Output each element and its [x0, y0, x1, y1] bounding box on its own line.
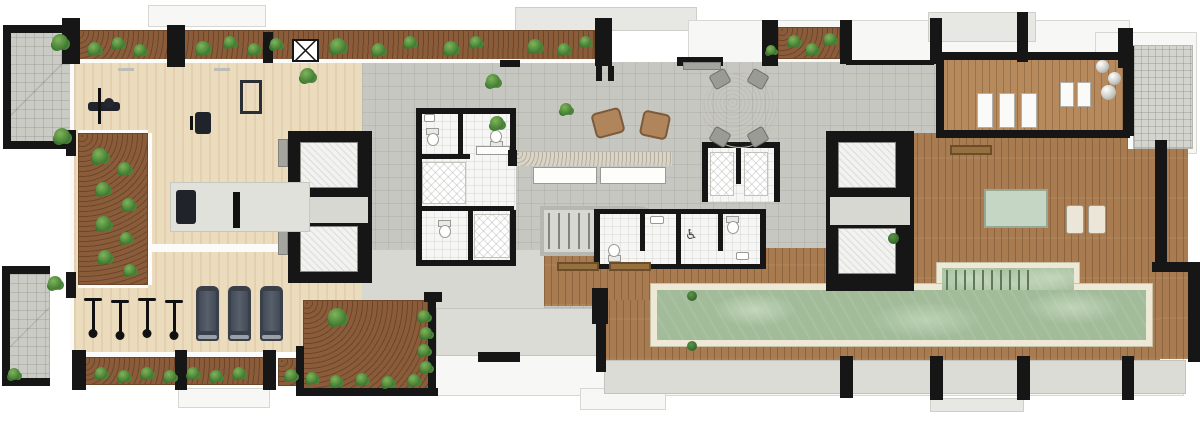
plant [788, 35, 800, 47]
walkway-south-west [436, 308, 604, 356]
sill-garden-bottom [78, 285, 148, 288]
plant [96, 182, 110, 196]
wall [846, 60, 934, 65]
wall [175, 350, 187, 390]
toilet [438, 220, 451, 238]
wall [640, 209, 645, 251]
shower-stall [474, 214, 510, 258]
plant [96, 216, 111, 231]
garden-west [78, 133, 148, 285]
wall [72, 350, 86, 390]
wall [840, 356, 853, 398]
deck-bench [557, 262, 599, 271]
wall [774, 142, 780, 202]
wall [416, 260, 516, 266]
sauna-bench [999, 93, 1015, 128]
sill-gym-bench [152, 244, 290, 252]
wall [2, 378, 50, 386]
wall [1122, 356, 1134, 400]
plant [408, 374, 420, 386]
window-tick [214, 68, 230, 71]
plant [124, 264, 136, 276]
spin-bike [84, 298, 102, 338]
plant [824, 33, 836, 45]
plant [528, 39, 542, 53]
wall [936, 52, 1128, 60]
sink [424, 114, 435, 122]
treadmill [196, 286, 219, 341]
plant [404, 36, 416, 48]
wall [167, 25, 185, 67]
plant [233, 367, 245, 379]
slab-top-left-ledge [148, 5, 266, 27]
gym-seat [104, 98, 114, 108]
deck-bench [950, 145, 992, 155]
plant [372, 43, 385, 56]
wall [594, 209, 600, 269]
sink [650, 216, 664, 224]
plant-sprig [888, 233, 899, 244]
wall [1188, 268, 1200, 362]
plant-sprig [687, 341, 697, 351]
shower-stall [422, 162, 466, 204]
walkway-south-east [604, 360, 1186, 394]
decor-sphere [1108, 72, 1121, 85]
wall [263, 350, 276, 390]
plant [164, 370, 176, 382]
plant [356, 373, 368, 385]
wall [458, 108, 463, 158]
plant-sprig [687, 291, 697, 301]
wall [596, 322, 606, 372]
plant [486, 74, 500, 88]
spin-bike [165, 300, 183, 340]
gym-rack [240, 80, 262, 114]
deck-bench [609, 262, 651, 271]
elevator-cab [838, 142, 896, 188]
plant [8, 368, 20, 380]
plant [122, 198, 135, 211]
sauna-bench [1021, 93, 1037, 128]
wall [592, 288, 608, 324]
ledge-bottom-right [930, 398, 1024, 412]
gym-bar [233, 192, 240, 228]
wall [3, 25, 11, 149]
window-tick [118, 68, 134, 71]
pool-step-lines [946, 270, 1034, 290]
wall [66, 272, 76, 298]
plant [330, 375, 342, 387]
decor-sphere [1101, 85, 1116, 100]
treadmill [260, 286, 283, 341]
decor-sphere [1096, 60, 1109, 73]
elevator-lobby-east [830, 197, 910, 225]
shower-stall [744, 152, 768, 196]
elevator-cab [300, 226, 358, 272]
plant [418, 310, 430, 322]
wall [702, 142, 708, 202]
sill-gym-left [70, 62, 74, 352]
floor-plan: ♿ [0, 0, 1200, 430]
plant [118, 370, 130, 382]
wall [1155, 140, 1167, 266]
plant [54, 128, 70, 144]
skylight [292, 39, 319, 62]
accessible-wc-icon: ♿ [685, 228, 703, 246]
plant [470, 36, 482, 48]
ledge-bottom-left [178, 388, 270, 408]
wall [500, 60, 520, 67]
plant [92, 148, 108, 164]
plant [120, 232, 132, 244]
plant [420, 361, 432, 373]
plant [248, 43, 260, 55]
elevator-cab [838, 228, 896, 274]
plant [330, 38, 346, 54]
plant [118, 162, 131, 175]
plant [418, 344, 430, 356]
wall [2, 266, 10, 386]
plant [224, 36, 236, 48]
bar-cabinet [600, 167, 666, 184]
wall [416, 206, 514, 211]
gym-machine [195, 112, 211, 134]
plant [560, 103, 572, 115]
vanity-counter [476, 146, 510, 155]
plant [285, 369, 297, 381]
plant [48, 276, 62, 290]
plant [210, 370, 222, 382]
toilet [608, 244, 621, 262]
plant [420, 327, 432, 339]
plant [196, 41, 210, 55]
plant [328, 308, 346, 326]
plant [134, 44, 146, 56]
plant [141, 367, 153, 379]
plant [88, 42, 101, 55]
plant [112, 37, 124, 49]
shelf [278, 139, 288, 167]
wall [718, 209, 723, 251]
wall [468, 206, 473, 266]
terrace-right [1133, 45, 1193, 149]
sauna-bench [1060, 82, 1074, 107]
lounge-armchair [639, 109, 672, 140]
deck-lounger [1066, 205, 1084, 234]
wall [930, 356, 943, 400]
wall [936, 130, 1130, 138]
plant [444, 41, 458, 55]
console-bench [683, 62, 721, 70]
toilet [426, 128, 439, 146]
plant [558, 43, 570, 55]
sink [736, 252, 749, 260]
wall [840, 20, 852, 64]
wall [608, 66, 614, 81]
plant [306, 372, 318, 384]
wall [510, 210, 516, 266]
plant [98, 250, 112, 264]
plant [382, 376, 394, 388]
wall [478, 352, 520, 362]
plant [270, 38, 282, 50]
sill-garden-top [78, 130, 148, 133]
wall [508, 150, 517, 166]
wall [736, 142, 741, 184]
wall [296, 388, 438, 396]
wall [676, 209, 681, 269]
wall [1123, 46, 1134, 136]
plant [806, 43, 818, 55]
toilet [726, 216, 739, 234]
plant [490, 116, 504, 130]
plant [52, 34, 68, 50]
sauna-bench [977, 93, 993, 128]
wall [762, 20, 778, 66]
spin-bike [111, 300, 129, 340]
wall [1017, 356, 1030, 400]
deck-lounger [1088, 205, 1106, 234]
gym-machine-bar [190, 116, 193, 130]
plant [187, 367, 199, 379]
wall [595, 18, 612, 66]
sauna-bench [1077, 82, 1091, 107]
wall [596, 66, 602, 81]
plant [580, 36, 591, 47]
treadmill [228, 286, 251, 341]
shower-stall [710, 152, 734, 196]
wall [936, 52, 944, 136]
spa-table [984, 189, 1048, 228]
spin-bike [138, 298, 156, 338]
gym-barbell [98, 88, 101, 124]
bar-counter-top [516, 152, 672, 166]
bar-cabinet [533, 167, 597, 184]
sill-garden-right [148, 133, 152, 285]
gym-cable-machine [176, 190, 196, 224]
plant [300, 68, 315, 83]
wall [760, 209, 766, 269]
plant [766, 45, 776, 55]
pool-water [657, 290, 1146, 340]
plant [95, 367, 107, 379]
